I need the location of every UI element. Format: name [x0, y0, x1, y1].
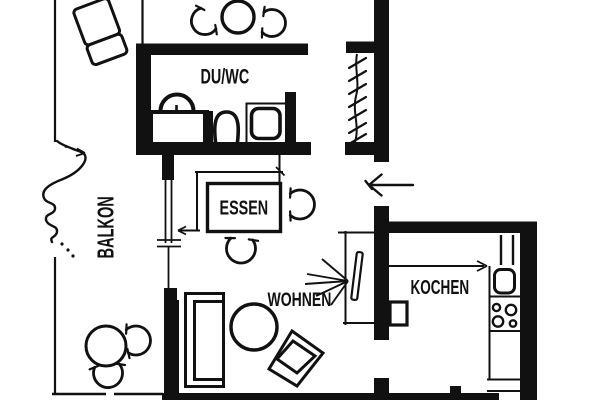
- svg-text:KOCHEN: KOCHEN: [411, 275, 470, 299]
- svg-text:DU/WC: DU/WC: [201, 65, 250, 88]
- svg-text:ESSEN: ESSEN: [220, 196, 269, 219]
- svg-text:WOHNEN: WOHNEN: [268, 289, 332, 311]
- svg-text:BALKON: BALKON: [93, 196, 119, 258]
